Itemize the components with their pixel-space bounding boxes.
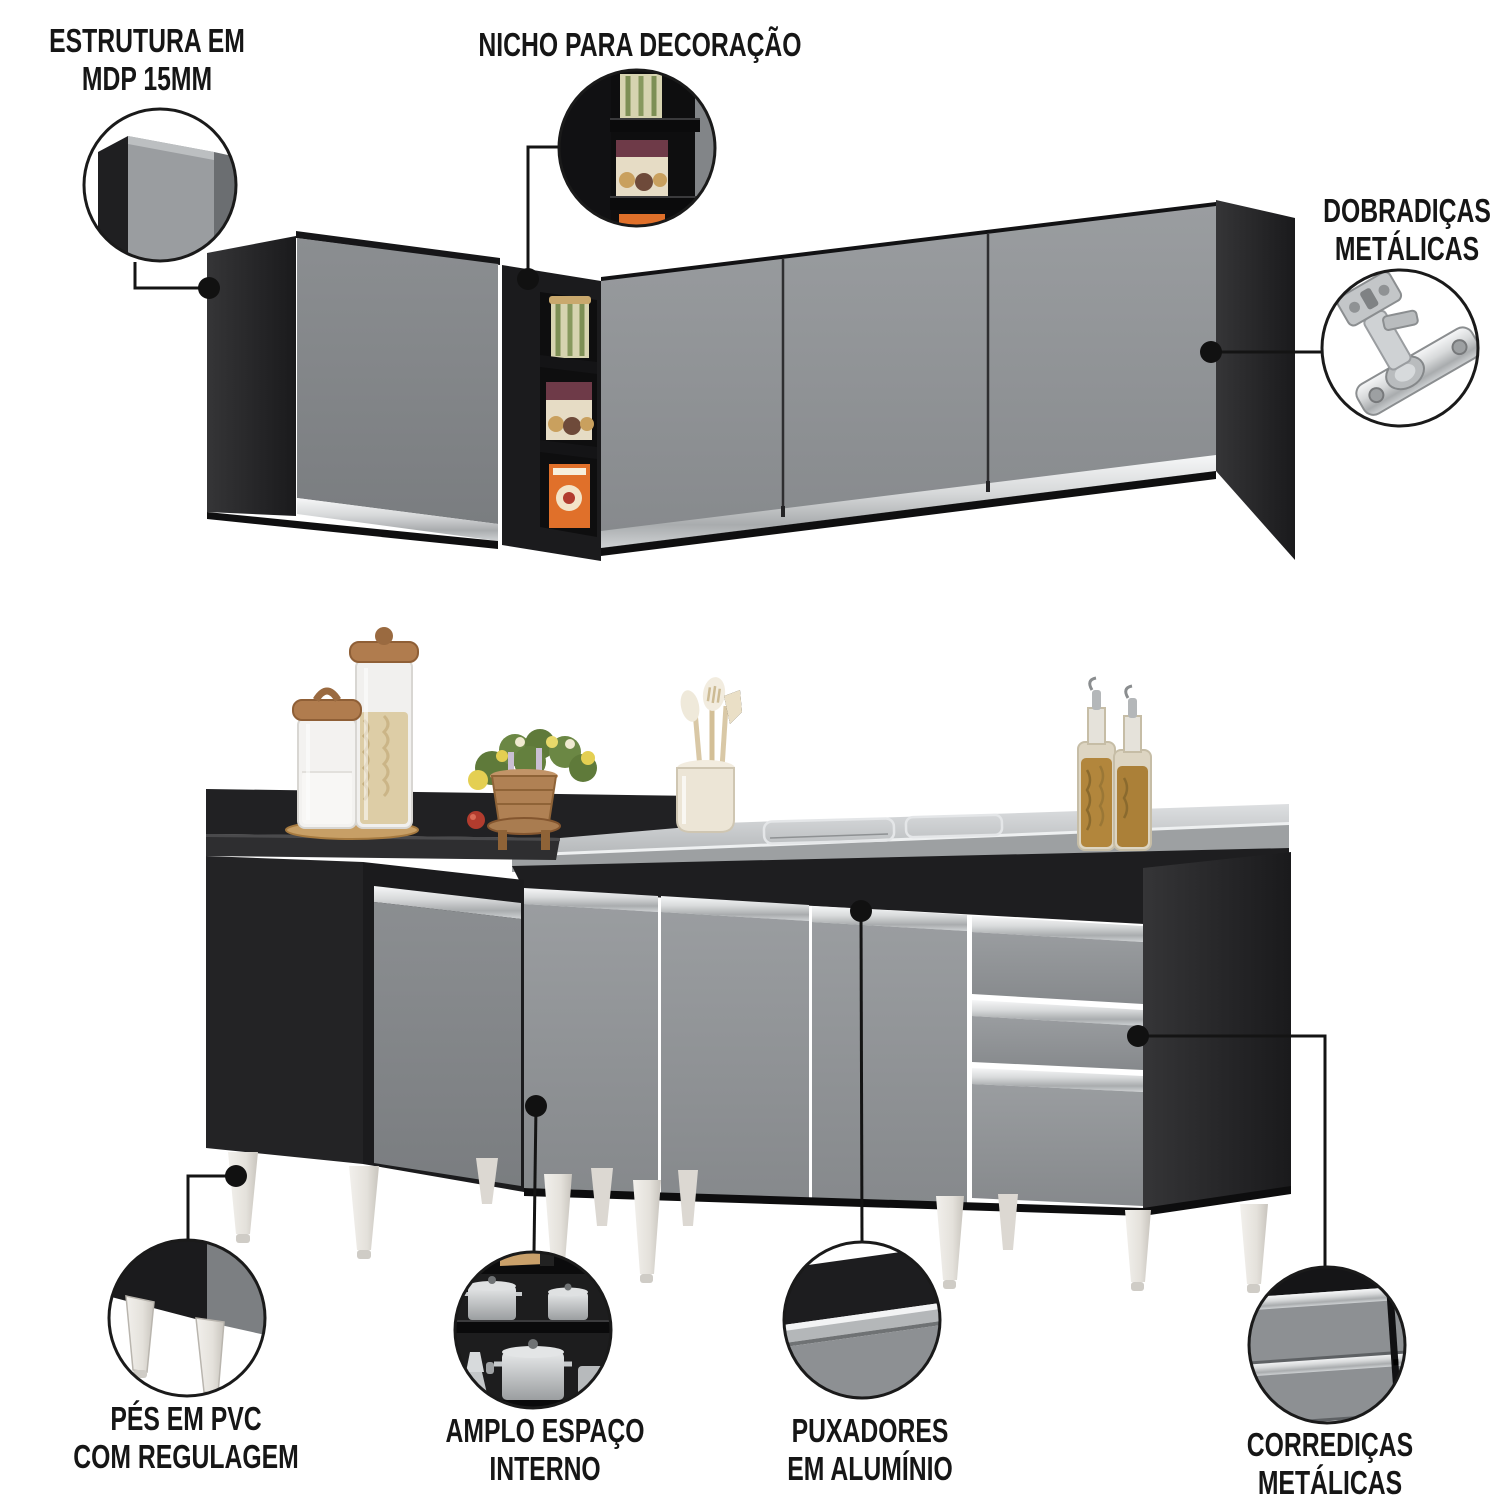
leg-rear xyxy=(591,1168,613,1226)
base-door xyxy=(524,904,658,1193)
leg xyxy=(349,1166,379,1250)
leg xyxy=(1240,1204,1268,1284)
callout-label-puxadores: PUXADORES EM ALUMÍNIO xyxy=(683,1412,1058,1488)
drawer-front xyxy=(972,932,1143,1004)
base-right-side-panel xyxy=(1143,852,1291,1210)
callout-label-amplo: AMPLO ESPAÇO INTERNO xyxy=(358,1412,733,1488)
dot-nicho xyxy=(517,268,539,290)
wall-left-door xyxy=(297,238,498,524)
leg xyxy=(544,1174,572,1262)
infographic-canvas: ESTRUTURA EM MDP 15MM NICHO PARA DECORAÇ… xyxy=(0,0,1500,1500)
base-cabinet xyxy=(206,789,1291,1216)
leg xyxy=(228,1152,258,1234)
basket xyxy=(492,776,556,822)
dot-pes xyxy=(225,1165,247,1187)
leg-rear xyxy=(476,1158,498,1204)
label-line: NICHO PARA DECORAÇÃO xyxy=(453,26,828,64)
leg-rear xyxy=(998,1194,1018,1250)
callout-circle-estrutura xyxy=(84,109,242,268)
base-left-door xyxy=(374,902,521,1186)
callout-circle-dobradicas xyxy=(1309,249,1483,426)
callout-circle-amplo xyxy=(450,1252,616,1410)
callout-circle-nicho xyxy=(559,70,717,230)
callout-label-corredicas: CORREDIÇAS METÁLICAS xyxy=(1143,1426,1500,1500)
pot xyxy=(502,1352,564,1400)
oil-bottle xyxy=(1078,678,1115,850)
label-line: COM REGULAGEM xyxy=(0,1438,374,1476)
oil-bottle xyxy=(1114,686,1151,850)
wooden-spoon xyxy=(678,688,702,723)
leg xyxy=(633,1180,661,1274)
dot-amplo xyxy=(525,1095,547,1117)
pot xyxy=(468,1286,516,1320)
wall-left-side-panel xyxy=(207,236,296,516)
tomato xyxy=(467,811,485,829)
dot-puxadores xyxy=(850,900,872,922)
label-line: INTERNO xyxy=(358,1450,733,1488)
dot-corredicas xyxy=(1127,1025,1149,1047)
utensil-holder xyxy=(677,676,742,832)
connector-pes xyxy=(188,1176,236,1240)
leg xyxy=(936,1196,964,1280)
label-line: PUXADORES xyxy=(683,1412,1058,1450)
base-left-side-panel xyxy=(206,856,363,1164)
label-line: PÉS EM PVC xyxy=(0,1400,374,1438)
base-door xyxy=(661,912,809,1200)
drawer-front xyxy=(972,1084,1143,1206)
glass-jar-short xyxy=(293,691,361,828)
callout-circle-pes xyxy=(100,1236,270,1400)
base-doors xyxy=(524,888,967,1206)
label-line: AMPLO ESPAÇO xyxy=(358,1412,733,1450)
wall-cabinet xyxy=(207,200,1295,561)
connector-amplo xyxy=(534,1106,536,1252)
callout-label-pes: PÉS EM PVC COM REGULAGEM xyxy=(0,1400,374,1476)
base-drawer-stack xyxy=(972,916,1143,1206)
label-line: ESTRUTURA EM xyxy=(0,22,335,60)
callout-label-estrutura: ESTRUTURA EM MDP 15MM xyxy=(0,22,335,98)
callout-label-nicho: NICHO PARA DECORAÇÃO xyxy=(453,26,828,64)
oil-bottles xyxy=(1078,678,1151,850)
connector-puxadores xyxy=(861,911,862,1242)
connector-nicho xyxy=(528,147,558,279)
label-line: DOBRADIÇAS xyxy=(1220,192,1500,230)
label-line: METÁLICAS xyxy=(1220,230,1500,268)
wall-decorative-niche xyxy=(502,265,601,561)
leg-rear xyxy=(678,1170,698,1226)
callout-label-dobradicas: DOBRADIÇAS METÁLICAS xyxy=(1220,192,1500,268)
dot-dobradicas xyxy=(1200,341,1222,363)
label-line: METÁLICAS xyxy=(1143,1464,1500,1500)
base-door xyxy=(812,922,967,1206)
leg xyxy=(1125,1210,1151,1282)
dot-estrutura xyxy=(198,277,220,299)
label-line: MDP 15MM xyxy=(0,60,335,98)
label-line: EM ALUMÍNIO xyxy=(683,1450,1058,1488)
connector-estrutura xyxy=(135,262,209,288)
label-line: CORREDIÇAS xyxy=(1143,1426,1500,1464)
glass-jar-tall xyxy=(350,627,418,828)
